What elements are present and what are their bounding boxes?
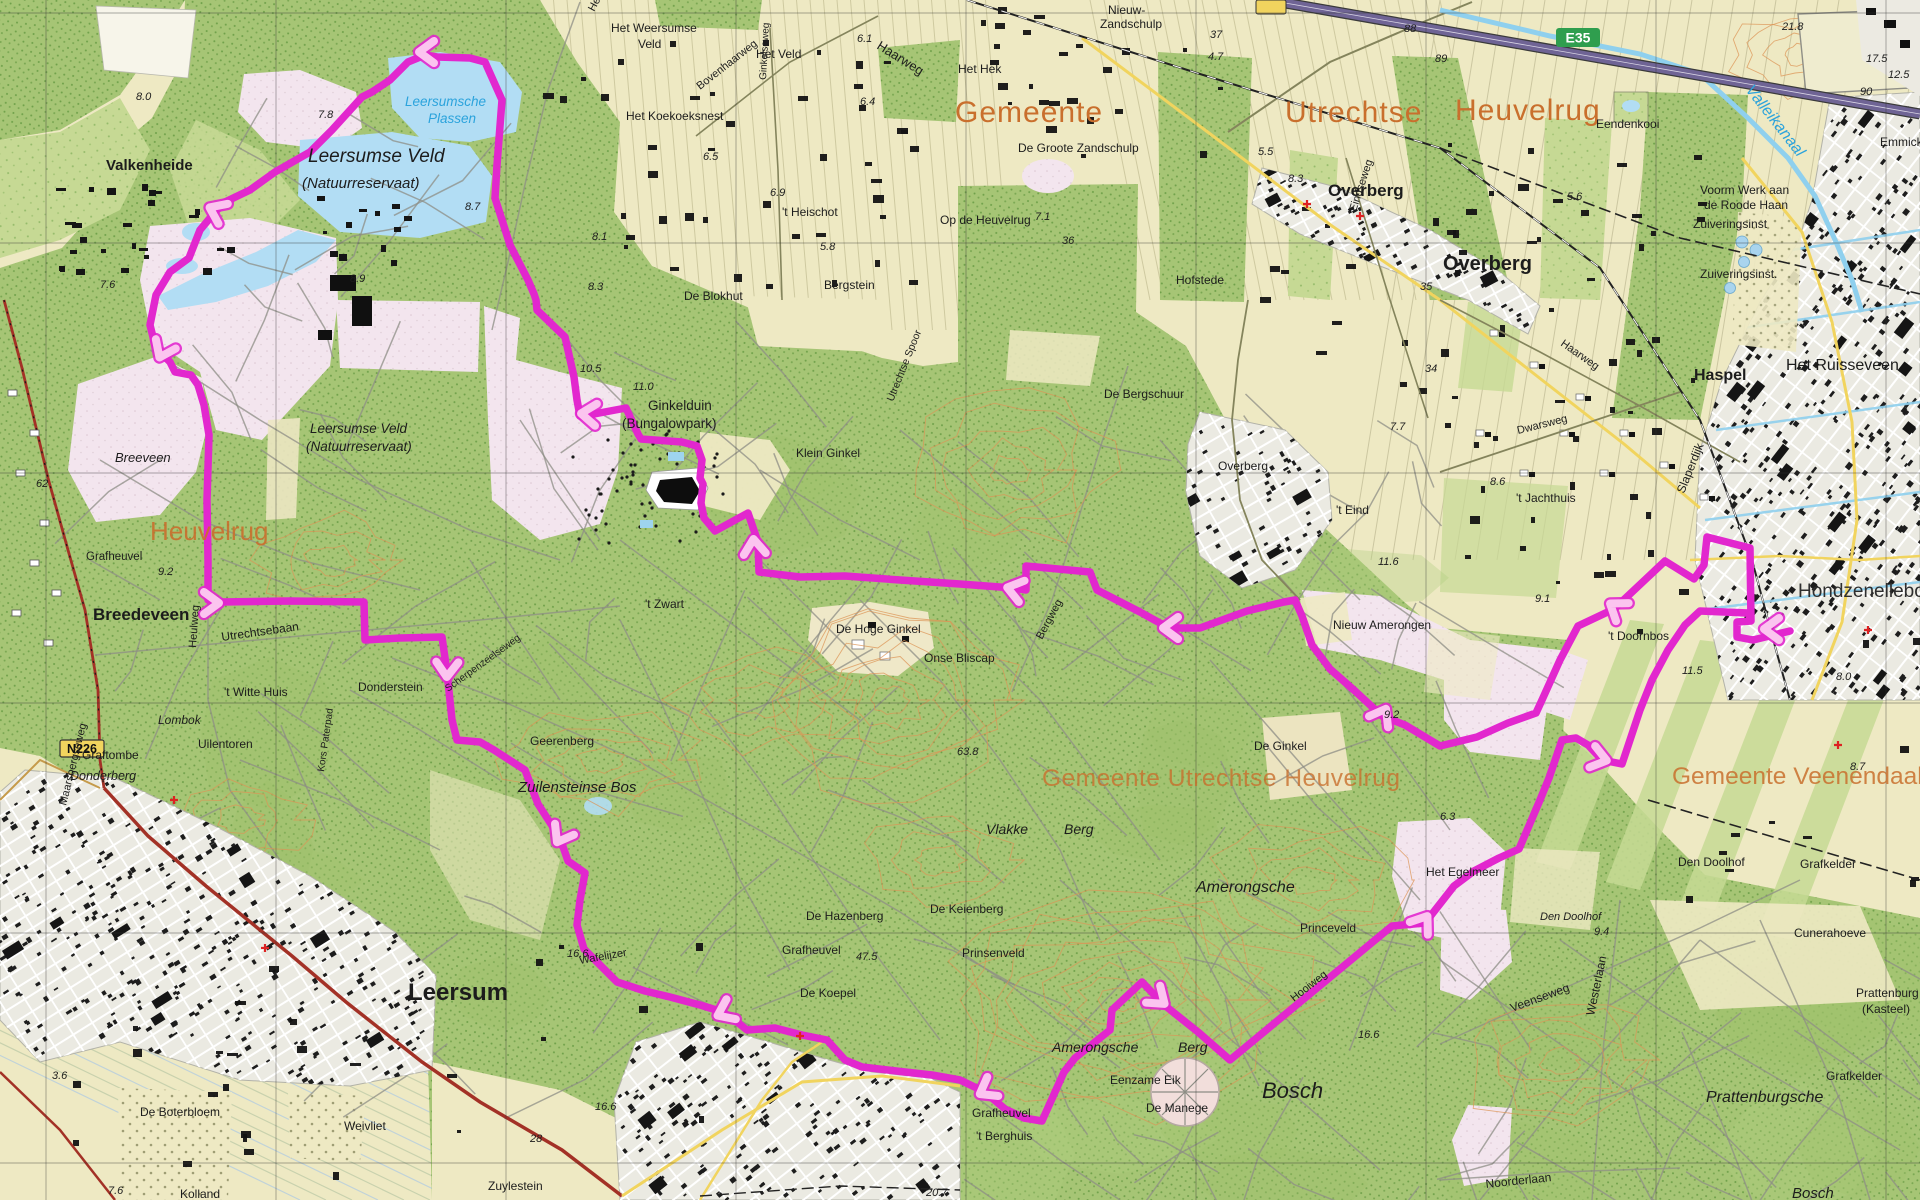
svg-text:Grafheuvel: Grafheuvel [782, 943, 841, 957]
svg-text:De Hazenberg: De Hazenberg [806, 909, 883, 923]
svg-text:Princeveld: Princeveld [1300, 921, 1356, 935]
svg-text:36: 36 [1062, 235, 1075, 247]
svg-text:'t Witte Huis: 't Witte Huis [224, 685, 288, 699]
svg-text:89: 89 [1435, 53, 1447, 65]
svg-text:8.9: 8.9 [350, 273, 365, 285]
svg-text:34: 34 [1425, 363, 1437, 375]
svg-text:Weivliet: Weivliet [344, 1119, 386, 1133]
svg-text:Prattenburgsche: Prattenburgsche [1706, 1089, 1824, 1106]
svg-text:7.8: 7.8 [318, 109, 334, 121]
svg-text:Vlakke: Vlakke [986, 821, 1028, 837]
svg-text:Het Ruisseveen: Het Ruisseveen [1786, 357, 1899, 374]
svg-text:(Kasteel): (Kasteel) [1862, 1002, 1910, 1016]
svg-text:'t Eind: 't Eind [1336, 503, 1369, 517]
svg-text:6.5: 6.5 [703, 151, 719, 163]
svg-text:9.2: 9.2 [1384, 709, 1399, 721]
svg-text:88: 88 [1404, 23, 1417, 35]
svg-text:9.1: 9.1 [1535, 593, 1550, 605]
svg-text:Grafheuvel: Grafheuvel [86, 551, 142, 563]
svg-text:8.7: 8.7 [465, 201, 481, 213]
svg-text:Hofstede: Hofstede [1176, 273, 1224, 287]
svg-text:11.6: 11.6 [1378, 556, 1399, 568]
svg-text:Zuylestein: Zuylestein [488, 1179, 543, 1193]
svg-text:Breedeveen: Breedeveen [93, 605, 189, 624]
svg-text:Grafkelder: Grafkelder [1800, 857, 1856, 871]
svg-text:Amerongsche: Amerongsche [1051, 1039, 1139, 1055]
svg-text:Uilentoren: Uilentoren [198, 737, 253, 751]
svg-text:21.8: 21.8 [1781, 21, 1804, 33]
svg-text:47.5: 47.5 [856, 951, 878, 963]
svg-text:Zandschulp: Zandschulp [1100, 17, 1162, 31]
svg-text:5.6: 5.6 [1567, 191, 1583, 203]
svg-text:6.3: 6.3 [1440, 811, 1456, 823]
svg-text:(Natuurreservaat): (Natuurreservaat) [302, 175, 420, 192]
svg-text:Ginkelduin: Ginkelduin [648, 398, 712, 413]
svg-text:Het Weersumse: Het Weersumse [611, 21, 697, 35]
svg-text:Donderstein: Donderstein [358, 680, 423, 694]
svg-text:Utrechtse: Utrechtse [1285, 96, 1422, 129]
svg-text:De Manege: De Manege [1146, 1101, 1208, 1115]
svg-text:7.6: 7.6 [100, 279, 116, 291]
svg-text:Leersumse Veld: Leersumse Veld [310, 421, 408, 436]
svg-text:20.7: 20.7 [925, 1187, 948, 1199]
svg-text:Het Koekoeksnest: Het Koekoeksnest [626, 109, 724, 123]
svg-text:Donderberg: Donderberg [70, 769, 136, 783]
svg-text:8.0: 8.0 [1836, 671, 1852, 683]
svg-text:8.3: 8.3 [588, 281, 604, 293]
svg-text:6.4: 6.4 [860, 96, 875, 108]
svg-text:9.2: 9.2 [158, 566, 173, 578]
svg-text:Amerongsche: Amerongsche [1195, 879, 1295, 896]
svg-text:Kolland: Kolland [180, 1187, 220, 1200]
svg-text:Op de Heuvelrug: Op de Heuvelrug [940, 213, 1031, 227]
svg-text:16.6: 16.6 [595, 1101, 617, 1113]
svg-text:Klein Ginkel: Klein Ginkel [796, 446, 860, 460]
svg-text:Zuiveringsinst: Zuiveringsinst [1693, 217, 1768, 231]
svg-text:35: 35 [1420, 281, 1433, 293]
svg-text:De Boterbloem: De Boterbloem [140, 1105, 220, 1119]
svg-text:Voorm Werk aan: Voorm Werk aan [1700, 183, 1789, 197]
svg-text:Grafkelder: Grafkelder [1826, 1069, 1882, 1083]
svg-text:90: 90 [1860, 86, 1873, 98]
svg-text:Cunerahoeve: Cunerahoeve [1794, 926, 1866, 940]
svg-text:37: 37 [1210, 29, 1223, 41]
svg-text:Het Egelmeer: Het Egelmeer [1426, 865, 1499, 879]
svg-text:De Blokhut: De Blokhut [684, 289, 743, 303]
svg-text:7.7: 7.7 [1390, 421, 1406, 433]
svg-text:Berg: Berg [1064, 821, 1094, 837]
svg-text:7.6: 7.6 [108, 1185, 124, 1197]
svg-text:'t Doornbos: 't Doornbos [1608, 629, 1669, 643]
svg-text:Graftombe: Graftombe [82, 748, 139, 762]
svg-text:3.6: 3.6 [52, 1070, 68, 1082]
svg-text:Prattenburg: Prattenburg [1856, 986, 1919, 1000]
svg-text:5.5: 5.5 [1258, 146, 1274, 158]
svg-text:De Keienberg: De Keienberg [930, 902, 1003, 916]
svg-text:De Bergschuur: De Bergschuur [1104, 387, 1184, 401]
svg-text:Zuiveringsinst.: Zuiveringsinst. [1700, 267, 1777, 281]
svg-text:Den Doolhof: Den Doolhof [1540, 911, 1602, 923]
svg-text:Berg: Berg [1178, 1039, 1208, 1055]
svg-text:Geerenberg: Geerenberg [530, 734, 594, 748]
svg-text:Haspel: Haspel [1694, 367, 1746, 384]
svg-text:E35: E35 [1566, 30, 1591, 46]
svg-text:Eendenkooi: Eendenkooi [1596, 117, 1659, 131]
svg-text:Onse Bliscap: Onse Bliscap [924, 651, 995, 665]
svg-text:62: 62 [36, 478, 48, 490]
svg-text:8.1: 8.1 [592, 231, 607, 243]
svg-text:'t Zwart: 't Zwart [645, 597, 685, 611]
svg-text:Bergstein: Bergstein [824, 278, 875, 292]
svg-text:Gemeente Utrechtse Heuvelrug: Gemeente Utrechtse Heuvelrug [1042, 765, 1401, 792]
svg-text:16.6: 16.6 [1358, 1029, 1380, 1041]
svg-text:Breeveen: Breeveen [115, 450, 171, 465]
svg-text:11.5: 11.5 [1682, 665, 1703, 677]
svg-text:Nieuw Amerongen: Nieuw Amerongen [1333, 618, 1431, 632]
svg-text:Plassen: Plassen [428, 111, 476, 126]
svg-text:Zuilensteinse Bos: Zuilensteinse Bos [517, 779, 637, 796]
svg-text:Den Doolhof: Den Doolhof [1678, 855, 1745, 869]
svg-text:4.7: 4.7 [1208, 51, 1224, 63]
svg-text:5.8: 5.8 [820, 241, 836, 253]
svg-text:Leersumse Veld: Leersumse Veld [308, 146, 446, 167]
svg-text:Nieuw-: Nieuw- [1108, 3, 1145, 17]
svg-text:Bosch: Bosch [1792, 1185, 1834, 1200]
svg-text:7.1: 7.1 [1035, 211, 1050, 223]
svg-text:8.6: 8.6 [1490, 476, 1506, 488]
svg-text:'t Jachthuis: 't Jachthuis [1516, 491, 1576, 505]
svg-text:11.0: 11.0 [633, 381, 654, 393]
svg-text:Prinsenveld: Prinsenveld [962, 946, 1025, 960]
svg-text:Eenzame Eik: Eenzame Eik [1110, 1073, 1182, 1087]
svg-text:De Hoge Ginkel: De Hoge Ginkel [836, 622, 921, 636]
svg-text:9.4: 9.4 [1594, 926, 1609, 938]
svg-text:Emmickhof: Emmickhof [1880, 135, 1920, 149]
svg-text:6.9: 6.9 [770, 187, 785, 199]
svg-text:12.5: 12.5 [1888, 69, 1910, 81]
svg-text:Grafheuvel: Grafheuvel [972, 1106, 1031, 1120]
svg-text:63.8: 63.8 [957, 746, 979, 758]
svg-text:De Koepel: De Koepel [800, 986, 856, 1000]
svg-text:De Groote Zandschulp: De Groote Zandschulp [1018, 141, 1139, 155]
svg-text:Valkenheide: Valkenheide [106, 157, 193, 174]
svg-text:de Roode Haan: de Roode Haan [1704, 198, 1788, 212]
svg-text:Leersumsche: Leersumsche [405, 94, 486, 109]
svg-text:Gemeente Veenendaal: Gemeente Veenendaal [1672, 763, 1920, 790]
svg-text:Heuvelrug: Heuvelrug [150, 516, 269, 546]
svg-text:Bosch: Bosch [1262, 1078, 1323, 1103]
svg-text:8.7: 8.7 [1850, 761, 1866, 773]
svg-text:17.5: 17.5 [1866, 53, 1888, 65]
svg-text:Lombok: Lombok [158, 713, 202, 727]
svg-text:Overberg: Overberg [1443, 253, 1532, 275]
svg-text:Heuvelrug: Heuvelrug [1455, 94, 1601, 127]
svg-text:8.3: 8.3 [1288, 173, 1304, 185]
svg-text:16.6: 16.6 [567, 948, 589, 960]
svg-text:'t Heischot: 't Heischot [782, 205, 838, 219]
svg-text:Hondzenellebo: Hondzenellebo [1798, 581, 1920, 602]
svg-text:Overberg: Overberg [1218, 459, 1268, 473]
svg-text:6.1: 6.1 [857, 33, 872, 45]
svg-text:28: 28 [529, 1133, 543, 1145]
svg-text:Het Hek: Het Hek [958, 62, 1002, 76]
svg-text:De Ginkel: De Ginkel [1254, 739, 1307, 753]
svg-text:(Bungalowpark): (Bungalowpark) [622, 416, 717, 431]
svg-text:'t Berghuis: 't Berghuis [976, 1129, 1032, 1143]
svg-text:Gemeente: Gemeente [955, 96, 1103, 129]
svg-text:8.0: 8.0 [136, 91, 152, 103]
svg-text:(Natuurreservaat): (Natuurreservaat) [306, 439, 412, 454]
svg-text:10.5: 10.5 [580, 363, 602, 375]
svg-text:Veld: Veld [638, 37, 661, 51]
svg-text:Leersum: Leersum [408, 979, 508, 1006]
